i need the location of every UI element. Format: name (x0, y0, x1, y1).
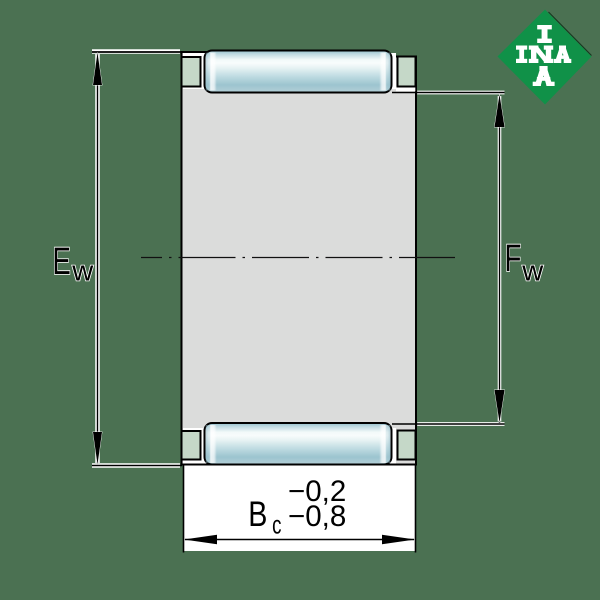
svg-text:c: c (272, 509, 281, 539)
svg-text:−0,8: −0,8 (288, 500, 346, 533)
svg-text:w: w (71, 256, 94, 288)
svg-text:w: w (521, 256, 544, 288)
svg-text:B: B (248, 494, 267, 533)
svg-text:E: E (53, 241, 71, 283)
svg-text:F: F (505, 238, 522, 280)
